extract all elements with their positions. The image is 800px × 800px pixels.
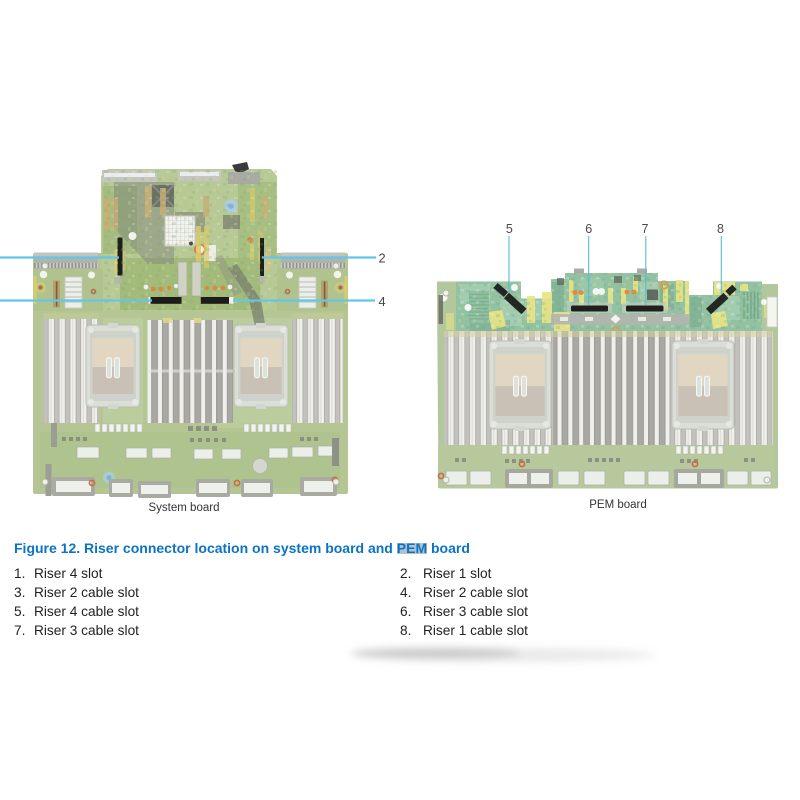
svg-text:5: 5 <box>506 222 513 236</box>
svg-text:2: 2 <box>378 251 385 266</box>
svg-text:4: 4 <box>378 294 385 309</box>
svg-text:6: 6 <box>585 222 592 236</box>
svg-text:7: 7 <box>642 222 649 236</box>
svg-text:8: 8 <box>717 222 724 236</box>
svg-text:PEM board: PEM board <box>589 499 647 511</box>
svg-text:System board: System board <box>149 502 220 514</box>
